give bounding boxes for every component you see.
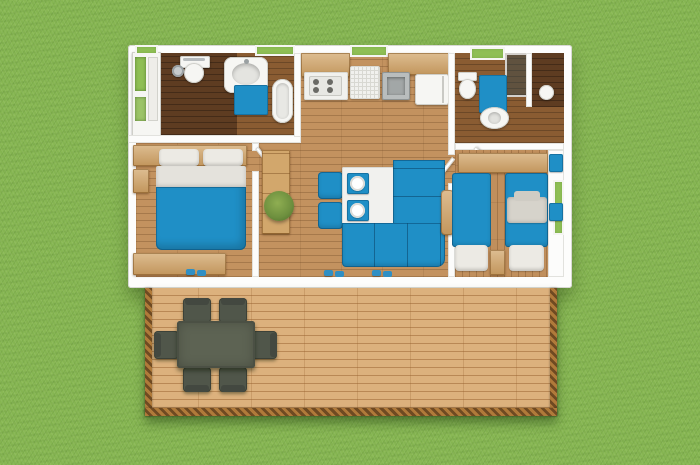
patio-chair	[219, 367, 247, 392]
storage-bench	[133, 253, 226, 275]
pillow	[203, 149, 243, 166]
blue-towel	[549, 154, 563, 172]
closet-shelf-green-item	[135, 97, 146, 121]
dining-chair	[318, 202, 343, 229]
blue-towel	[549, 203, 563, 221]
slippers	[372, 270, 381, 276]
closet-shelf-green-item	[135, 57, 146, 91]
toilet-bowl	[184, 63, 204, 83]
wc-divider-wall	[526, 53, 532, 107]
wall-bath2-bottom	[455, 143, 564, 150]
wall-bath1-kitchen	[294, 53, 301, 137]
closet-shelf-unit	[148, 57, 158, 121]
twin-room-shelf	[458, 153, 548, 173]
shower-head	[172, 65, 184, 77]
slippers	[324, 270, 333, 276]
wall-bedroom1-living	[252, 171, 259, 277]
plant	[264, 191, 294, 221]
single-bed-pillow	[509, 245, 544, 271]
rope-border-bottom	[145, 408, 557, 416]
deck-terrace	[145, 288, 557, 416]
patio-chair	[154, 331, 179, 359]
mobile-home-floorplan	[128, 45, 572, 288]
basin-bowl	[232, 63, 260, 85]
bathroom-1-window	[255, 45, 295, 56]
single-bed-duvet	[452, 173, 491, 247]
single-bed-pillow	[455, 245, 488, 271]
patio-chair	[183, 298, 211, 323]
wall-horizontal-left	[128, 135, 301, 143]
rope-border-left	[145, 288, 152, 416]
twin-nightstand	[490, 250, 505, 275]
shower-rail	[183, 58, 205, 61]
fridge-door-line	[442, 76, 444, 103]
corner-sofa-horizontal	[342, 223, 445, 267]
dining-chair	[318, 172, 343, 199]
closet-window	[135, 45, 158, 55]
scene-canvas	[0, 0, 700, 465]
bathroom-2-skylight	[470, 47, 505, 60]
patio-table	[177, 321, 255, 368]
plate	[350, 203, 365, 218]
hob-burners	[313, 79, 319, 85]
double-bed-duvet	[156, 187, 246, 250]
basin-faucet	[244, 59, 249, 64]
slippers	[186, 269, 195, 275]
bath-mat	[234, 85, 268, 115]
pedestal-basin-bowl	[488, 112, 501, 124]
kitchen-sink-bowl	[387, 77, 405, 95]
wall-kitchen-bath2	[448, 53, 455, 155]
patio-chair	[183, 367, 211, 392]
rope-border-right	[550, 288, 557, 416]
wc-fixture	[539, 85, 554, 100]
patio-chair	[252, 331, 277, 359]
shirt-sleeves	[514, 191, 540, 201]
plate	[350, 176, 365, 191]
bed-sheet-fold	[156, 166, 246, 189]
pillow	[159, 149, 199, 166]
bedside-unit	[133, 169, 149, 193]
draining-rack	[350, 66, 380, 99]
patio-chair	[219, 298, 247, 323]
kitchen-window	[350, 45, 388, 57]
toilet-2-bowl	[459, 79, 476, 99]
bathtub-inner	[276, 83, 289, 119]
